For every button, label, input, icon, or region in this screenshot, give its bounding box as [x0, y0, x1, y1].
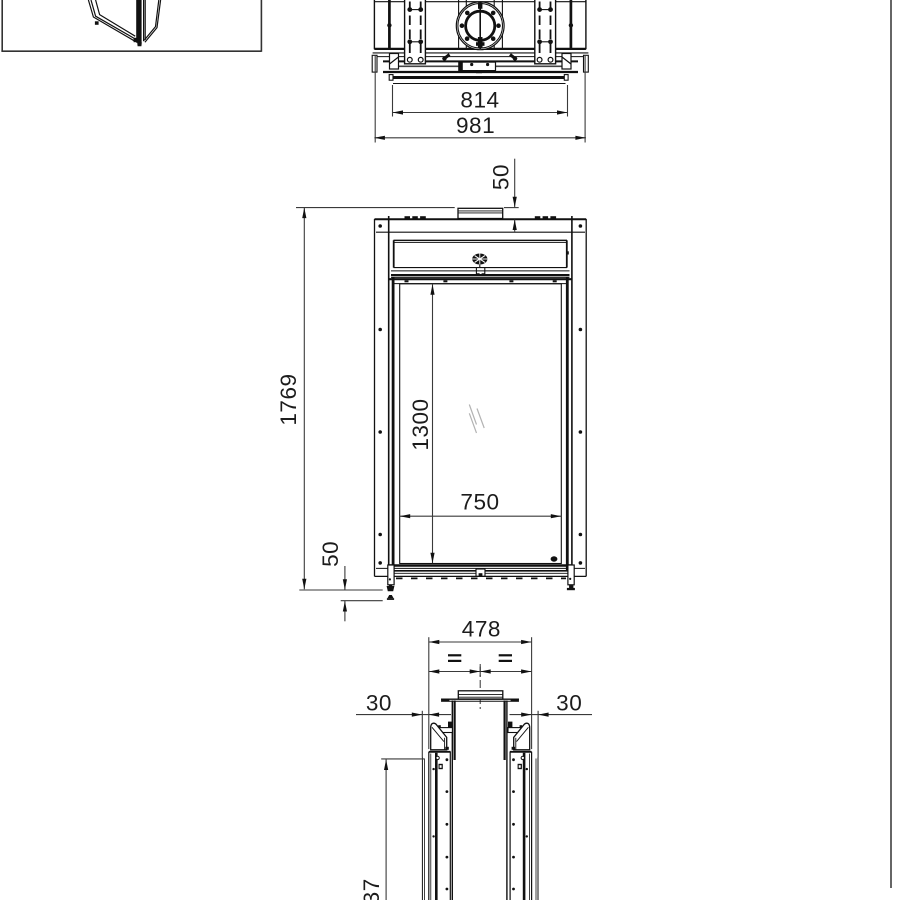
svg-text:981: 981: [456, 113, 495, 138]
svg-text:1769: 1769: [276, 373, 301, 425]
svg-text:1300: 1300: [408, 398, 433, 450]
svg-text:478: 478: [462, 616, 501, 641]
svg-text:50: 50: [318, 541, 343, 567]
svg-text:814: 814: [460, 88, 499, 113]
svg-text:537: 537: [359, 878, 384, 900]
svg-text:750: 750: [460, 490, 499, 515]
svg-text:30: 30: [556, 690, 582, 715]
svg-text:50: 50: [489, 164, 514, 190]
svg-text:30: 30: [366, 690, 392, 715]
